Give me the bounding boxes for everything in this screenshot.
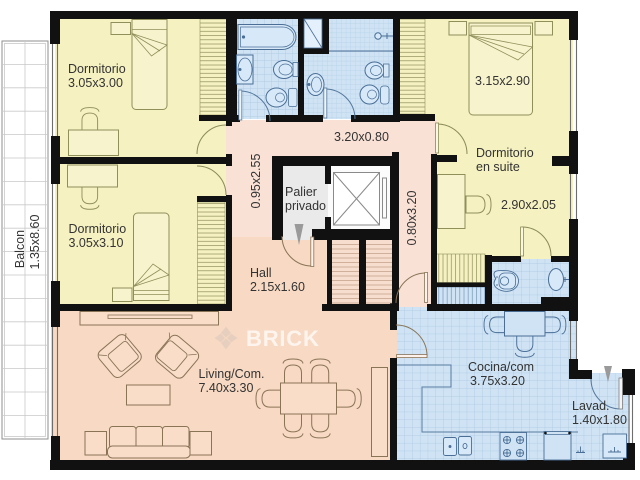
svg-text:3.15x2.90: 3.15x2.90 — [475, 74, 530, 88]
svg-text:0.80x3.20: 0.80x3.20 — [405, 191, 419, 246]
svg-text:Lavad.: Lavad. — [572, 399, 610, 413]
svg-text:BRICK: BRICK — [246, 326, 320, 351]
svg-text:3.75x3.20: 3.75x3.20 — [470, 374, 525, 388]
svg-text:privado: privado — [285, 199, 326, 213]
svg-text:Dormitorio: Dormitorio — [68, 62, 126, 76]
svg-text:1.35x8.60: 1.35x8.60 — [28, 215, 42, 270]
svg-text:7.40x3.30: 7.40x3.30 — [199, 381, 254, 395]
svg-text:2.90x2.05: 2.90x2.05 — [501, 198, 556, 212]
svg-text:0.95x2.55: 0.95x2.55 — [249, 154, 263, 209]
svg-text:Balcon: Balcon — [13, 230, 27, 268]
svg-text:Living/Com.: Living/Com. — [199, 367, 265, 381]
svg-text:2.15x1.60: 2.15x1.60 — [250, 280, 305, 294]
svg-text:Palier: Palier — [285, 185, 317, 199]
svg-text:3.05x3.00: 3.05x3.00 — [68, 76, 123, 90]
svg-text:Hall: Hall — [250, 266, 272, 280]
svg-text:3.05x3.10: 3.05x3.10 — [69, 236, 124, 250]
svg-text:en suite: en suite — [476, 160, 520, 174]
svg-text:Cocina/com: Cocina/com — [468, 360, 534, 374]
svg-text:3.20x0.80: 3.20x0.80 — [334, 130, 389, 144]
svg-text:Dormitorio: Dormitorio — [476, 146, 534, 160]
svg-text:1.40x1.80: 1.40x1.80 — [572, 413, 627, 427]
svg-text:Dormitorio: Dormitorio — [69, 222, 127, 236]
